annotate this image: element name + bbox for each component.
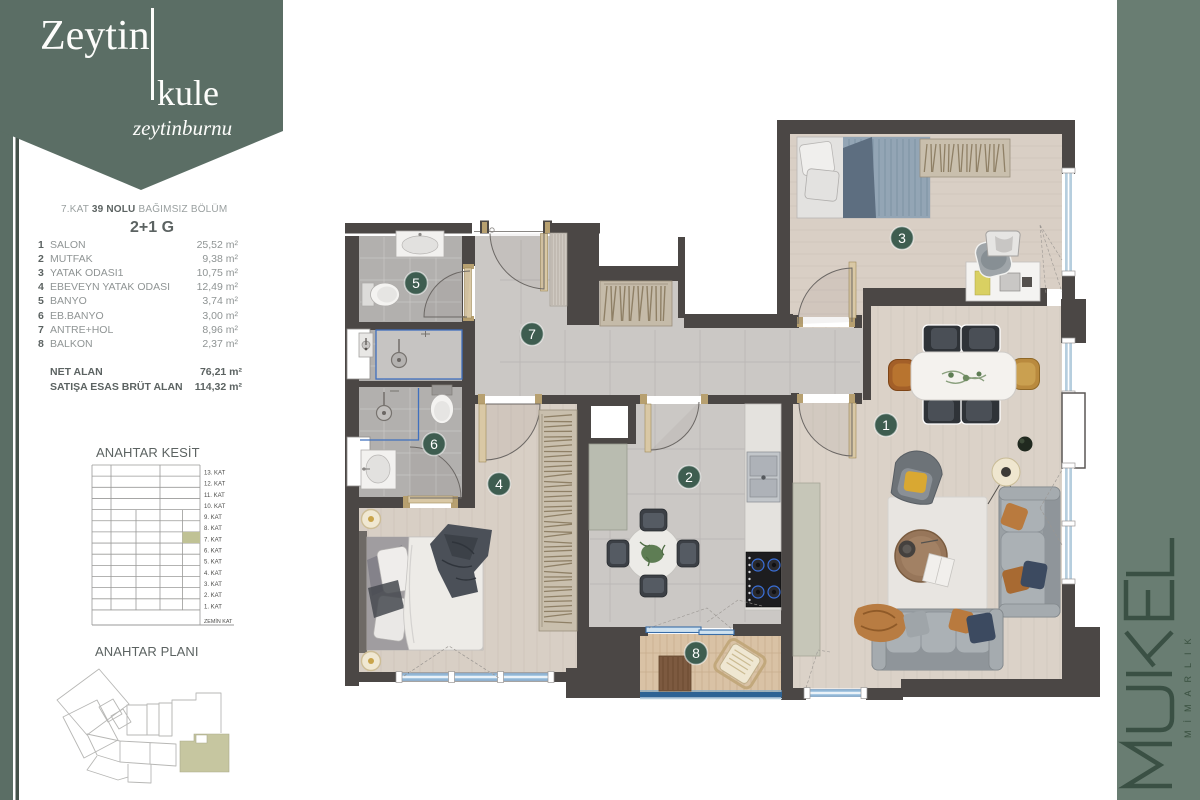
svg-text:13. KAT: 13. KAT [204, 471, 226, 477]
svg-text:3: 3 [898, 230, 906, 246]
svg-text:5: 5 [412, 275, 420, 291]
svg-text:MİMARLIK: MİMARLIK [1183, 630, 1193, 738]
svg-text:4: 4 [495, 476, 503, 492]
svg-text:6. KAT: 6. KAT [204, 549, 222, 555]
svg-text:12. KAT: 12. KAT [204, 482, 226, 488]
svg-text:4. KAT: 4. KAT [204, 571, 222, 577]
svg-text:2: 2 [685, 469, 693, 485]
svg-text:11. KAT: 11. KAT [204, 493, 225, 499]
svg-text:2. KAT: 2. KAT [204, 593, 222, 599]
svg-text:10. KAT: 10. KAT [204, 504, 226, 510]
svg-text:8. KAT: 8. KAT [204, 526, 222, 532]
svg-text:ZEMİN KAT: ZEMİN KAT [204, 618, 233, 625]
svg-text:1. KAT: 1. KAT [204, 604, 222, 610]
svg-text:3. KAT: 3. KAT [204, 582, 222, 588]
svg-text:6: 6 [430, 436, 438, 452]
svg-text:1: 1 [882, 417, 890, 433]
svg-text:9. KAT: 9. KAT [204, 515, 222, 521]
svg-text:7. KAT: 7. KAT [204, 537, 222, 543]
svg-text:5. KAT: 5. KAT [204, 560, 222, 566]
svg-text:8: 8 [692, 645, 700, 661]
svg-text:7: 7 [528, 326, 536, 342]
